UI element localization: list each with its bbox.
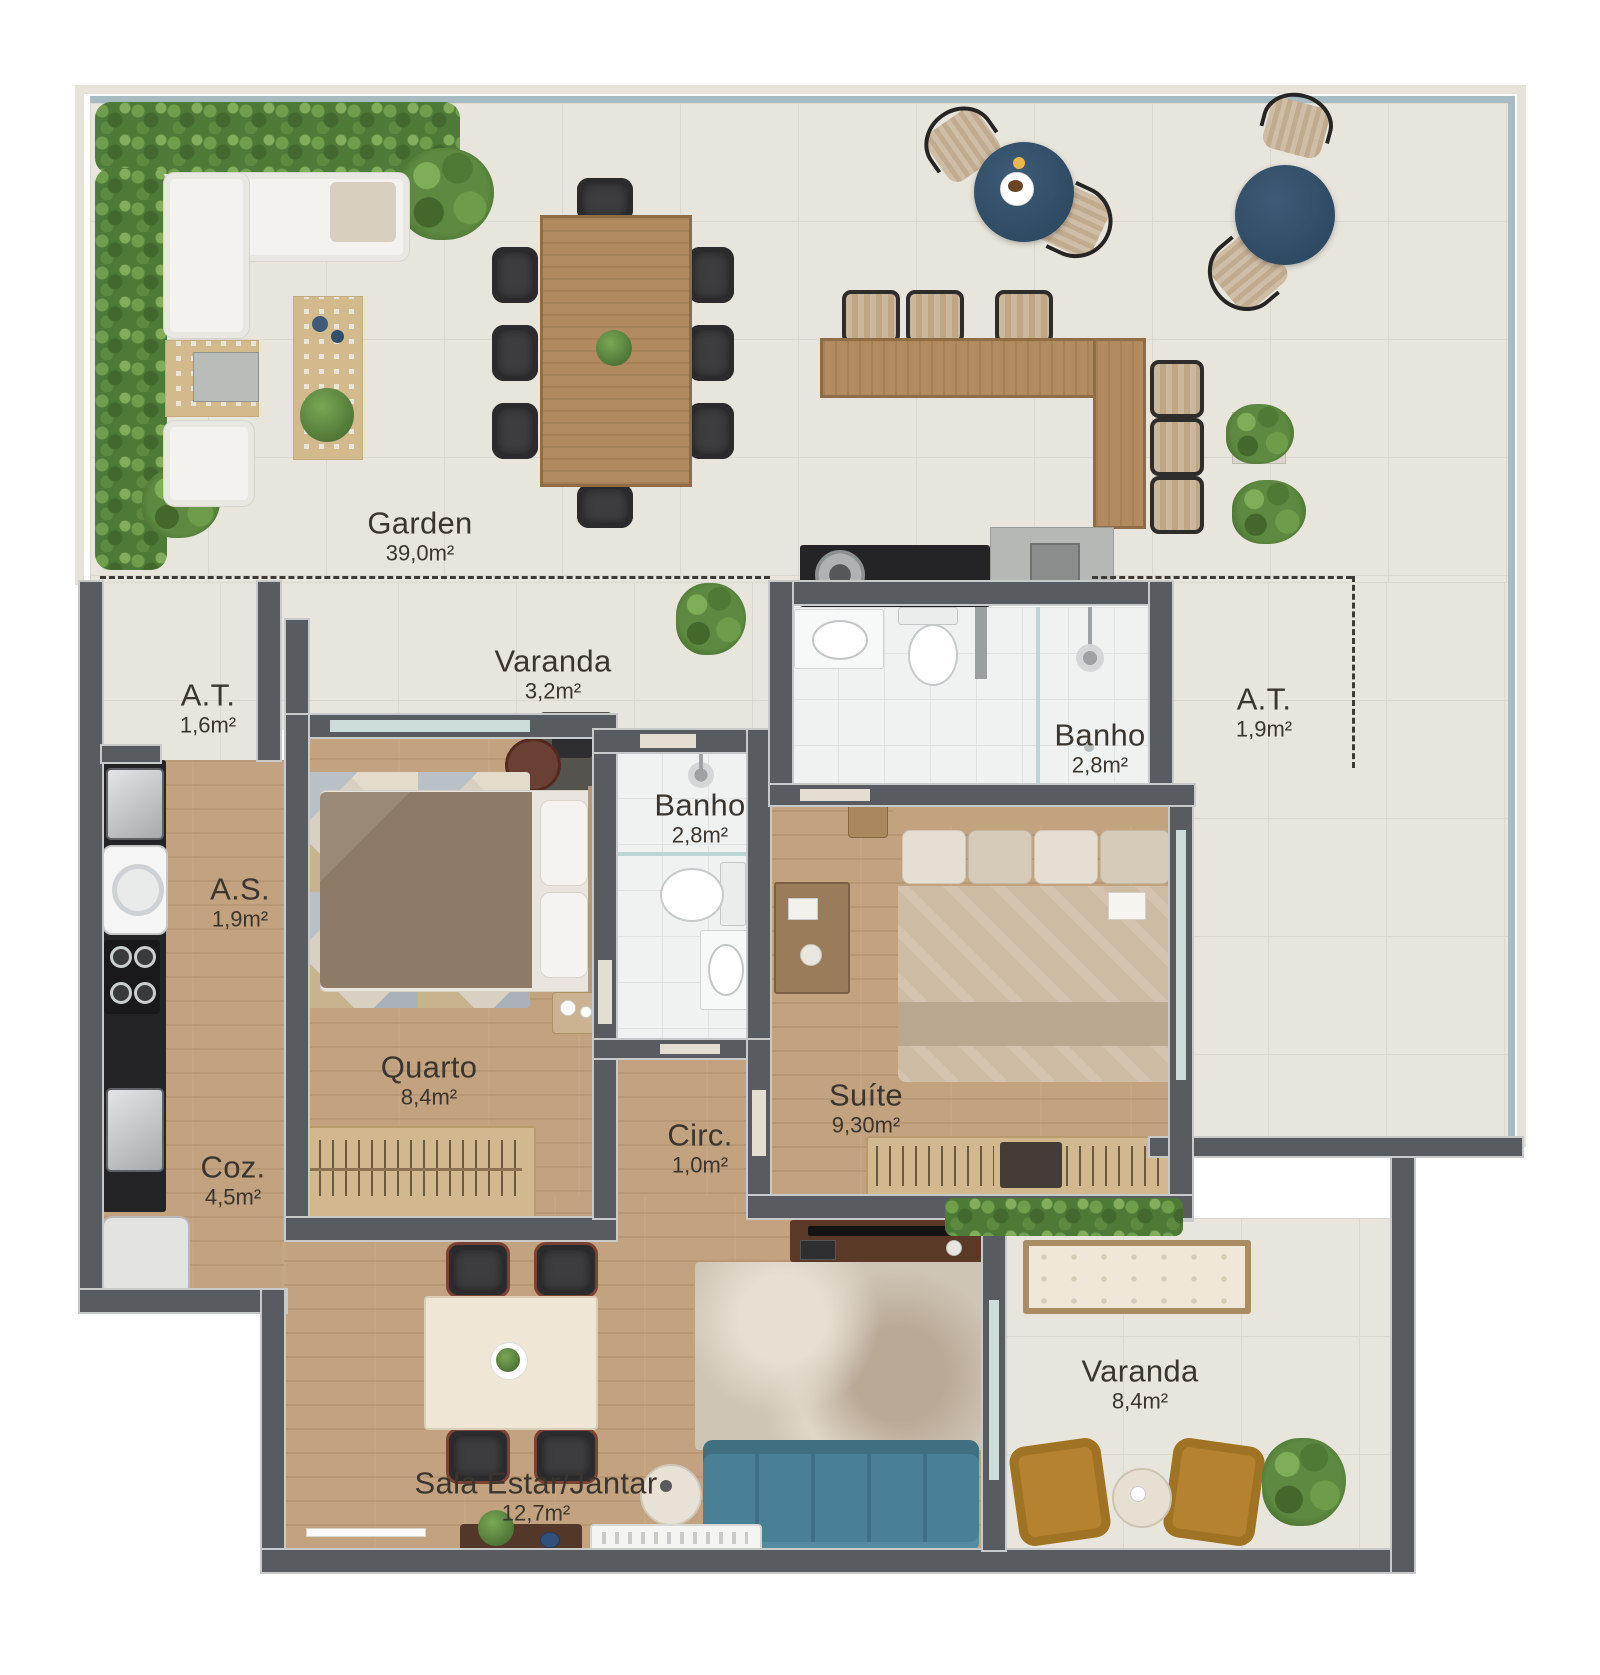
- wall: [770, 582, 1172, 604]
- wall: [770, 582, 792, 785]
- room-area: 1,9m²: [210, 907, 270, 932]
- room-area: 8,4m²: [1081, 1389, 1198, 1414]
- dining-chair: [688, 247, 734, 303]
- bar-stool: [1150, 476, 1204, 534]
- room-label-varanda-bottom: Varanda 8,4m²: [1081, 1354, 1198, 1413]
- glass-rail: [306, 1528, 426, 1537]
- room-area: 4,5m²: [201, 1185, 266, 1210]
- perimeter-line-right: [1508, 96, 1515, 1138]
- wall: [286, 620, 308, 720]
- room-area: 2,8m²: [654, 823, 745, 848]
- shower-arm-icon: [1088, 607, 1092, 647]
- decor-frame: [800, 1240, 836, 1260]
- door-opening: [640, 734, 696, 748]
- wall: [748, 730, 770, 1040]
- room-name: A.T.: [180, 678, 236, 713]
- wall: [258, 582, 280, 760]
- cup-icon: [1130, 1486, 1146, 1502]
- lamp-icon: [560, 1000, 576, 1016]
- kitchen-sink: [106, 1088, 164, 1172]
- pillow: [1100, 830, 1170, 884]
- room-label-as: A.S. 1,9m²: [210, 872, 270, 931]
- wall: [262, 1290, 284, 1572]
- room-area: 12,7m²: [415, 1501, 658, 1526]
- room-name: Quarto: [381, 1050, 478, 1085]
- bed-throw: [898, 1002, 1174, 1046]
- hanger-rail-icon: [1066, 1146, 1162, 1186]
- room-name: Banho: [654, 788, 745, 823]
- outer-frame-right: [1517, 85, 1526, 1147]
- room-label-quarto: Quarto 8,4m²: [381, 1050, 478, 1109]
- bar-stool: [1150, 418, 1204, 476]
- bar-stool: [906, 290, 964, 344]
- dashed-boundary: [100, 576, 770, 579]
- sala-dining-chair: [534, 1242, 598, 1298]
- room-area: 1,0m²: [667, 1153, 732, 1178]
- room-name: Garden: [367, 506, 472, 541]
- wall: [286, 715, 308, 1240]
- outdoor-sofa-vertical: [163, 172, 250, 339]
- window: [1176, 830, 1186, 1080]
- dining-chair: [492, 247, 538, 303]
- wall: [286, 1218, 616, 1240]
- toilet: [660, 868, 724, 922]
- room-area: 1,6m²: [180, 713, 236, 738]
- outdoor-chaise: [163, 420, 255, 507]
- tufted-daybed: [1023, 1240, 1251, 1314]
- burner-icon: [134, 982, 156, 1004]
- wall-planter: [945, 1198, 1183, 1236]
- pillow: [1034, 830, 1098, 884]
- toilet-tank: [898, 607, 958, 625]
- wall: [1150, 1138, 1522, 1156]
- wall: [262, 1550, 1414, 1572]
- room-label-circ: Circ. 1,0m²: [667, 1118, 732, 1177]
- pillow: [902, 830, 966, 884]
- dining-chair: [492, 325, 538, 381]
- room-area: 9,30m²: [829, 1113, 903, 1138]
- room-label-at1: A.T. 1,6m²: [180, 678, 236, 737]
- bar-stool: [1150, 360, 1204, 418]
- room-name: Varanda: [1081, 1354, 1198, 1389]
- burner-icon: [134, 946, 156, 968]
- room-label-banho1: Banho 2,8m²: [654, 788, 745, 847]
- sala-dining-chair: [446, 1242, 510, 1298]
- room-area: 1,9m²: [1236, 717, 1292, 742]
- vase-icon: [331, 330, 344, 343]
- room-name: Sala Estar/Jantar: [415, 1466, 658, 1501]
- wall: [80, 1290, 286, 1312]
- serving-tray: [193, 352, 259, 402]
- floor-plan: Garden 39,0m² A.T. 1,6m² Varanda 3,2m² B…: [0, 0, 1600, 1675]
- door-opening: [660, 1044, 720, 1054]
- shower-arm-icon: [699, 752, 703, 774]
- centerpiece-plant: [596, 330, 632, 366]
- room-label-coz: Coz. 4,5m²: [201, 1150, 266, 1209]
- glass-door: [989, 1300, 999, 1480]
- bowl-icon: [540, 1532, 560, 1548]
- decor-icon: [800, 944, 822, 966]
- outer-frame-left: [75, 85, 84, 585]
- cup-icon: [1013, 157, 1025, 169]
- room-name: A.S.: [210, 872, 270, 907]
- tv-icon: [808, 1226, 958, 1236]
- food-icon: [1008, 180, 1023, 192]
- dining-chair: [688, 403, 734, 459]
- mustard-armchair: [1007, 1436, 1112, 1548]
- door-opening: [800, 789, 870, 801]
- bench-slats-icon: [602, 1532, 748, 1544]
- bath-divider: [975, 607, 987, 679]
- washbasin: [812, 620, 868, 660]
- bar-stool: [995, 290, 1053, 344]
- vase-icon: [312, 316, 328, 332]
- dining-chair: [688, 325, 734, 381]
- pillow: [540, 800, 588, 886]
- room-name: Circ.: [667, 1118, 732, 1153]
- table-plant: [300, 388, 354, 442]
- dashed-boundary: [1092, 576, 1352, 579]
- window: [330, 720, 530, 732]
- mustard-armchair: [1161, 1436, 1266, 1548]
- toilet: [908, 624, 958, 686]
- room-label-varanda-top: Varanda 3,2m²: [494, 644, 611, 703]
- room-name: Suíte: [829, 1078, 903, 1113]
- washer-drum-icon: [112, 864, 164, 916]
- dining-chair: [577, 484, 633, 528]
- dashed-boundary: [1352, 576, 1355, 768]
- bar-counter-vertical: [1093, 338, 1146, 529]
- bar-stool: [842, 290, 900, 344]
- door-opening: [752, 1090, 766, 1156]
- wall: [1392, 1148, 1414, 1572]
- bedside-table: [848, 802, 888, 838]
- pillow: [968, 830, 1032, 884]
- burner-icon: [110, 946, 132, 968]
- room-label-garden: Garden 39,0m²: [367, 506, 472, 565]
- room-area: 8,4m²: [381, 1085, 478, 1110]
- room-label-sala: Sala Estar/Jantar 12,7m²: [415, 1466, 658, 1525]
- room-area: 2,8m²: [1054, 753, 1145, 778]
- shower-glass: [616, 852, 748, 856]
- room-area: 3,2m²: [494, 679, 611, 704]
- lamp-icon: [580, 1006, 592, 1018]
- hedge-top: [95, 102, 460, 174]
- book-icon: [1108, 892, 1146, 920]
- centerpiece-plant: [496, 1348, 520, 1372]
- decor-icon: [946, 1240, 962, 1256]
- cup-icon: [660, 1480, 672, 1492]
- room-name: Banho: [1054, 718, 1145, 753]
- hanger-rail-icon: [876, 1146, 994, 1186]
- room-label-banho2: Banho 2,8m²: [1054, 718, 1145, 777]
- terrace-right-floor: [1150, 582, 1508, 1138]
- room-name: A.T.: [1236, 682, 1292, 717]
- refrigerator: [102, 1216, 190, 1296]
- wardrobe-chest: [1000, 1142, 1062, 1188]
- room-name: Coz.: [201, 1150, 266, 1185]
- wardrobe-rod: [306, 1168, 522, 1171]
- door-opening: [598, 960, 612, 1024]
- sala-rug: [695, 1262, 987, 1450]
- room-label-at2: A.T. 1,9m²: [1236, 682, 1292, 741]
- pillow: [540, 892, 588, 978]
- room-label-suite: Suíte 9,30m²: [829, 1078, 903, 1137]
- shower-head-icon: [1076, 644, 1104, 672]
- quarto-duvet: [320, 792, 532, 988]
- bistro-table: [1235, 165, 1335, 265]
- wall: [80, 582, 102, 1312]
- outer-frame-top: [75, 85, 1522, 94]
- laundry-sink: [106, 768, 164, 840]
- sofa-blanket: [330, 182, 396, 242]
- burner-icon: [110, 982, 132, 1004]
- dining-chair: [492, 403, 538, 459]
- book-icon: [788, 898, 818, 920]
- wall: [102, 746, 160, 762]
- wall: [1150, 582, 1172, 785]
- washbasin: [708, 944, 744, 996]
- room-area: 39,0m²: [367, 541, 472, 566]
- room-name: Varanda: [494, 644, 611, 679]
- shower-glass: [1036, 607, 1040, 785]
